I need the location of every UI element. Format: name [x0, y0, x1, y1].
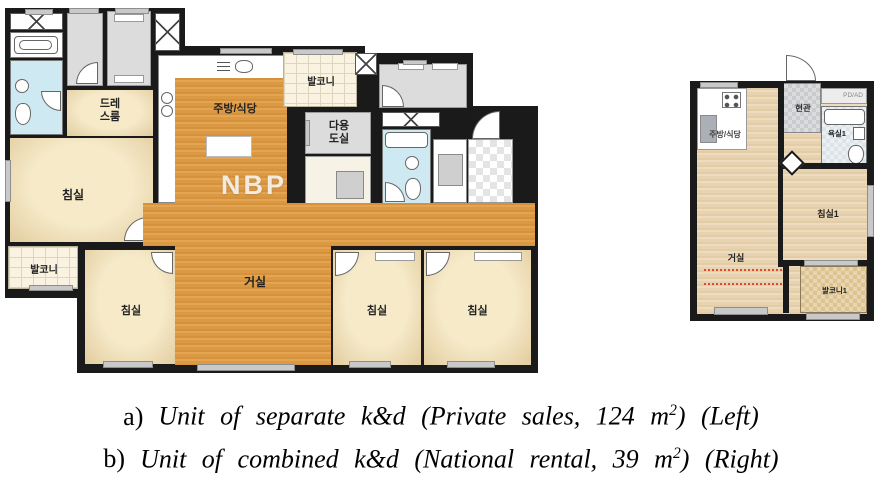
burner-icon — [161, 105, 173, 117]
interior-wall — [778, 83, 784, 169]
entrance-label: 현관 — [784, 102, 822, 114]
figure-canvas: 드레 스룸 침실 발코니 침실 주방/식당 발코니 — [0, 0, 882, 481]
window — [115, 8, 149, 14]
window — [220, 48, 272, 54]
caption-b-superscript: 2 — [673, 445, 681, 462]
bedroom-master: 침실 — [10, 138, 153, 242]
dress-room-label-line1: 드레 — [100, 98, 120, 110]
closet-1 — [67, 13, 103, 86]
interior-wall — [778, 169, 783, 267]
balcony-left-label: 발코니 — [9, 261, 79, 276]
balcony-right: 발코니1 — [800, 266, 867, 313]
window — [5, 160, 11, 202]
burner-icon — [161, 92, 173, 104]
bath-label: 욕실1 — [823, 128, 851, 139]
bedroom-mid-label: 침실 — [333, 302, 421, 318]
caption-a-prefix: a) — [123, 402, 143, 431]
caption-a-body: Unit of separate k&d (Private sales, 124… — [158, 402, 669, 431]
utility-label-line2: 도실 — [329, 133, 349, 145]
entrance-right: 현관 — [783, 83, 821, 133]
bathtub-icon — [385, 132, 428, 148]
balcony-left: 발코니 — [8, 246, 78, 289]
window — [714, 307, 768, 315]
window — [25, 9, 53, 15]
balcony-top: 발코니 — [283, 52, 357, 107]
bedroom-bl-label: 침실 — [85, 302, 177, 318]
kitchen-label: 주방/식당 — [200, 100, 270, 116]
pd-ad-label: PD/AD — [843, 92, 863, 99]
window — [806, 313, 860, 320]
closet-door — [432, 63, 458, 70]
kitchen-island — [206, 136, 252, 157]
dress-room-label: 드레 스룸 — [67, 98, 153, 124]
door-arc — [41, 91, 61, 111]
vestibule — [433, 139, 467, 203]
window — [349, 361, 391, 368]
balcony-right-label: 발코니1 — [801, 285, 868, 296]
sink-icon — [405, 156, 419, 170]
window — [197, 364, 295, 371]
front-door-arc — [786, 55, 816, 81]
closet-door — [114, 14, 144, 22]
door-arc — [385, 182, 405, 202]
closet-2 — [107, 11, 151, 86]
bedroom-right-label: 침실 — [424, 302, 531, 318]
door-arc — [382, 85, 404, 107]
balcony-top-label: 발코니 — [284, 73, 358, 88]
bedroom-right-label: 침실1 — [810, 207, 846, 220]
living-label: 거실 — [215, 273, 295, 290]
utility-room: 다용 도실 — [305, 112, 371, 154]
kitchen-sink-icon — [235, 60, 253, 73]
closet-door — [474, 252, 522, 261]
heating-line — [704, 269, 782, 271]
shoe-cabinet — [438, 154, 463, 186]
bathtub-basin — [19, 40, 52, 50]
caption-line-b: b)Unit of combined k&d (National rental,… — [0, 435, 882, 478]
window — [804, 260, 858, 266]
window — [293, 49, 343, 55]
hatched-closet — [382, 112, 440, 127]
stove-burner-icon — [217, 62, 230, 72]
door-arc — [76, 62, 98, 84]
toilet-icon — [15, 103, 31, 125]
toilet-icon — [405, 178, 421, 200]
nbp-watermark: NBP — [221, 170, 287, 201]
window — [867, 185, 874, 237]
stove-icon — [722, 92, 741, 108]
window — [103, 361, 153, 368]
left-floorplan: 드레 스룸 침실 발코니 침실 주방/식당 발코니 — [5, 8, 540, 378]
window — [447, 361, 495, 368]
bathroom-right: 욕실1 — [821, 106, 867, 166]
cabinet — [336, 171, 364, 199]
kitchen-label-right: 주방/식당 — [698, 129, 752, 140]
window — [403, 60, 427, 65]
door-arc — [426, 252, 450, 276]
entrance-hall — [468, 139, 513, 203]
right-floorplan: 주방/식당 현관 PD/AD 욕실1 침실1 거실 발코니1 — [688, 55, 878, 325]
hatched-closet — [355, 53, 377, 75]
caption-b-body: Unit of combined k&d (National rental, 3… — [140, 444, 673, 473]
bedroom-master-label: 침실 — [62, 186, 84, 203]
sink-icon — [15, 79, 29, 93]
hatched-closet — [155, 13, 180, 51]
bathtub-room — [10, 32, 63, 58]
window — [69, 8, 99, 14]
pd-ad-shaft: PD/AD — [821, 88, 867, 104]
interior-wall — [783, 260, 789, 313]
toilet-icon — [848, 145, 864, 164]
bathtub-icon — [14, 36, 58, 54]
living-right-label: 거실 — [716, 251, 756, 264]
bathtub-icon — [824, 109, 865, 125]
bathroom-2 — [382, 129, 431, 204]
door-arc — [151, 252, 173, 274]
heating-line — [704, 283, 782, 285]
bedroom-bottom-mid: 침실 — [333, 250, 421, 365]
door-arc — [335, 252, 359, 276]
figure-caption: a)Unit of separate k&d (Private sales, 1… — [0, 392, 882, 477]
utility-lower — [305, 156, 371, 204]
bedroom-bottom-left: 침실 — [85, 250, 177, 364]
bathroom-1 — [10, 60, 63, 135]
bedroom-bottom-right: 침실 — [424, 250, 531, 365]
hatched-closet — [10, 13, 63, 30]
closet-door — [114, 75, 144, 83]
sink-icon — [853, 127, 865, 140]
caption-b-prefix: b) — [103, 444, 125, 473]
window — [29, 285, 73, 291]
window — [305, 120, 310, 146]
utility-label-line1: 다용 — [329, 120, 349, 132]
caption-a-tail: ) (Left) — [677, 402, 759, 431]
dress-room-label-line2: 스룸 — [100, 111, 120, 123]
window — [700, 82, 738, 88]
caption-b-tail: ) (Right) — [681, 444, 779, 473]
gray-room-top — [379, 64, 467, 108]
caption-line-a: a)Unit of separate k&d (Private sales, 1… — [0, 392, 882, 435]
dress-room: 드레 스룸 — [67, 90, 153, 136]
utility-label: 다용 도실 — [306, 120, 372, 146]
closet-door — [375, 252, 415, 261]
caption-a-superscript: 2 — [669, 402, 677, 419]
kitchen-counter — [697, 88, 747, 150]
